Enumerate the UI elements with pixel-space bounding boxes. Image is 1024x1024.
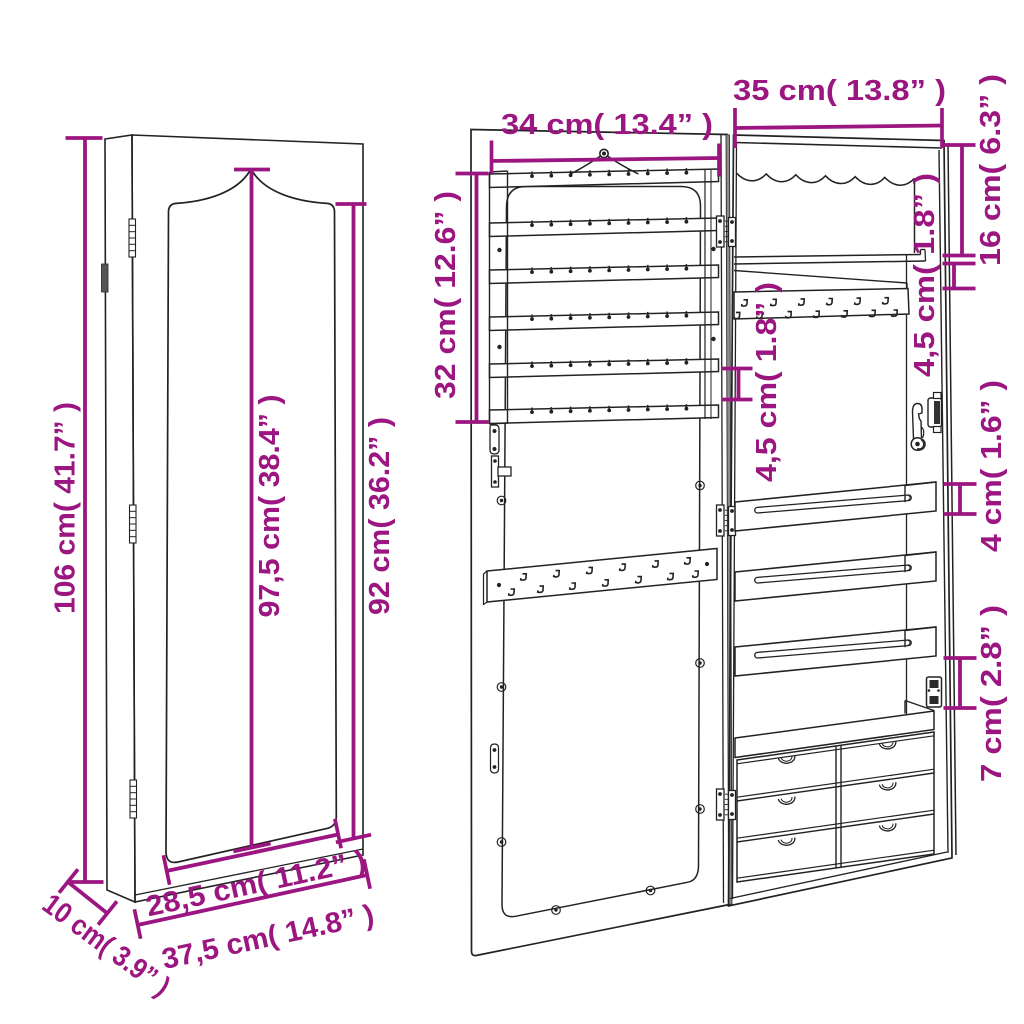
svg-text:97,5 cm( 38.4” ): 97,5 cm( 38.4” ) <box>254 395 286 618</box>
svg-text:92 cm( 36.2” ): 92 cm( 36.2” ) <box>364 417 396 615</box>
svg-text:4,5 cm( 1.8” ): 4,5 cm( 1.8” ) <box>751 282 783 482</box>
svg-text:32 cm( 12.6” ): 32 cm( 12.6” ) <box>430 191 462 399</box>
svg-text:35 cm( 13.8” ): 35 cm( 13.8” ) <box>733 75 946 107</box>
svg-text:4 cm( 1.6” ): 4 cm( 1.6” ) <box>976 380 1008 552</box>
svg-text:4,5 cm( 1.8” ): 4,5 cm( 1.8” ) <box>909 173 941 377</box>
svg-text:7 cm( 2.8” ): 7 cm( 2.8” ) <box>976 605 1008 782</box>
svg-text:34 cm( 13.4” ): 34 cm( 13.4” ) <box>501 109 713 141</box>
svg-text:106 cm( 41.7” ): 106 cm( 41.7” ) <box>50 402 82 614</box>
svg-text:16 cm( 6.3” ): 16 cm( 6.3” ) <box>975 74 1007 266</box>
